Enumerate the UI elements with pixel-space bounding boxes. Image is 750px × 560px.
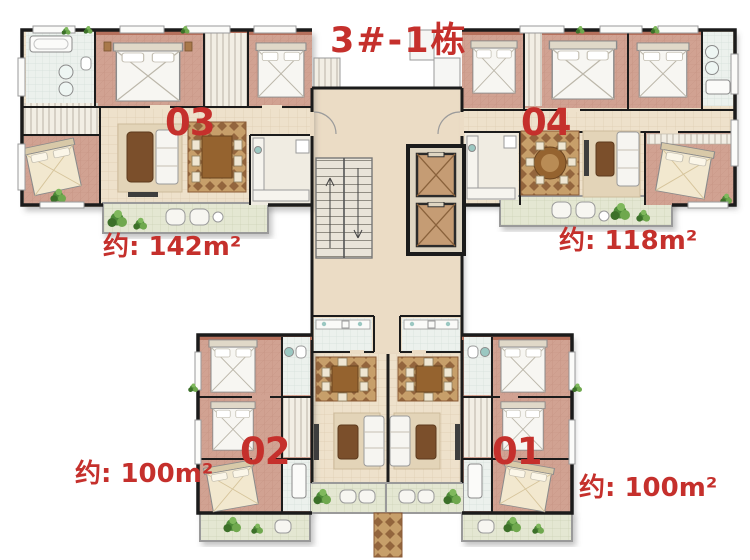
bathtub-icon: [706, 80, 730, 94]
sink-icon: [481, 348, 490, 357]
sink-icon: [59, 82, 73, 96]
toilet-icon: [296, 346, 306, 358]
bed-icon: [653, 143, 714, 200]
bathtub-icon: [30, 36, 72, 52]
plant-icon: [576, 26, 585, 34]
unit-01-number: 01: [492, 433, 542, 470]
sink-icon: [59, 65, 73, 79]
sink-icon: [285, 348, 294, 357]
unit-04-number: 04: [521, 104, 571, 141]
decor-strip: [374, 513, 402, 557]
bed-icon: [637, 43, 689, 97]
armchair: [416, 425, 436, 459]
toilet-icon: [81, 57, 91, 70]
elevator-icon: [417, 152, 455, 196]
unit-02-number: 02: [240, 433, 290, 470]
floorplan-image: 3#-1栋 03 04 02 01 约: 142m² 约: 118m² 约: 1…: [0, 0, 750, 560]
bed-icon: [256, 43, 306, 97]
unit-03-area-label: 约: 142m²: [103, 234, 241, 260]
unit-02-area-label: 约: 100m²: [75, 461, 213, 487]
tv: [128, 192, 158, 197]
elevator-shaft: [408, 146, 464, 254]
staircase: [316, 158, 372, 258]
plant-icon: [84, 26, 93, 34]
sofa: [364, 416, 384, 466]
sofa: [127, 132, 153, 182]
bed-icon: [549, 41, 616, 99]
dining-table: [332, 366, 358, 392]
sink-icon: [706, 46, 719, 59]
tv: [455, 424, 460, 460]
bed-icon: [209, 340, 257, 392]
kitchen-02: [314, 318, 372, 351]
coffee-table: [596, 142, 614, 176]
building-title: 3#-1栋: [330, 24, 468, 59]
dining-table: [416, 366, 442, 392]
sofa: [390, 416, 410, 466]
elevator-icon: [417, 202, 455, 246]
unit-03-number: 03: [165, 104, 215, 141]
toilet-icon: [468, 346, 478, 358]
bathtub-icon: [468, 464, 482, 498]
kitchen-01: [402, 318, 460, 351]
sink-icon: [706, 62, 719, 75]
tv: [584, 140, 589, 176]
bathtub-icon: [292, 464, 306, 498]
bed-icon: [471, 41, 517, 93]
tv: [314, 424, 319, 460]
armchair: [338, 425, 358, 459]
bed-icon: [113, 43, 182, 101]
unit-01-area-label: 约: 100m²: [579, 475, 717, 501]
bed-icon: [499, 340, 547, 392]
sofa: [617, 132, 639, 186]
unit-04-area-label: 约: 118m²: [559, 228, 697, 254]
